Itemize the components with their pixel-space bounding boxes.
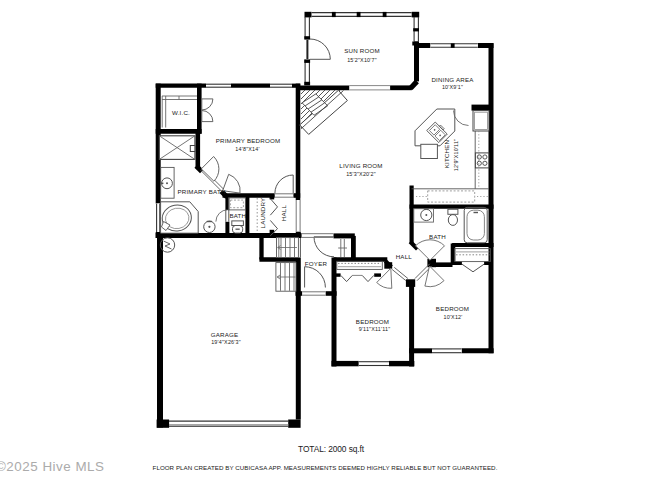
- svg-text:15'3"X20'2": 15'3"X20'2": [346, 171, 376, 177]
- svg-text:BEDROOM: BEDROOM: [436, 305, 469, 312]
- svg-text:W.I.C.: W.I.C.: [172, 109, 190, 116]
- svg-text:PRIMARY BATH: PRIMARY BATH: [177, 188, 225, 195]
- svg-text:FLOOR PLAN CREATED BY CUBICASA: FLOOR PLAN CREATED BY CUBICASA APP. MEAS…: [153, 464, 498, 471]
- svg-text:BATH: BATH: [229, 212, 246, 219]
- svg-text:14'8"X14': 14'8"X14': [235, 146, 259, 152]
- svg-text:12'9"X10'11": 12'9"X10'11": [453, 139, 459, 171]
- svg-text:©2025 Hive MLS: ©2025 Hive MLS: [0, 459, 104, 474]
- svg-text:DINING AREA: DINING AREA: [431, 76, 474, 83]
- svg-text:LIVING ROOM: LIVING ROOM: [339, 162, 382, 169]
- svg-text:15'2"X10'7": 15'2"X10'7": [347, 57, 377, 63]
- svg-text:19'4"X26'3": 19'4"X26'3": [211, 339, 241, 345]
- svg-text:BEDROOM: BEDROOM: [356, 318, 389, 325]
- svg-text:HALL: HALL: [396, 253, 413, 260]
- svg-text:9'11"X11'11": 9'11"X11'11": [359, 326, 391, 332]
- svg-text:BATH: BATH: [429, 233, 446, 240]
- svg-text:10'X9'1": 10'X9'1": [442, 84, 463, 90]
- svg-text:LAUNDRY: LAUNDRY: [259, 198, 266, 229]
- svg-text:TOTAL: 2000 sq.ft: TOTAL: 2000 sq.ft: [298, 444, 365, 454]
- svg-text:PRIMARY BEDROOM: PRIMARY BEDROOM: [216, 137, 281, 144]
- svg-text:KITCHEN: KITCHEN: [443, 140, 450, 169]
- svg-text:10'X12': 10'X12': [443, 314, 462, 320]
- svg-text:GARAGE: GARAGE: [211, 331, 239, 338]
- svg-text:SUN ROOM: SUN ROOM: [344, 47, 380, 54]
- svg-text:FOYER: FOYER: [305, 260, 328, 267]
- svg-text:HALL: HALL: [280, 205, 287, 222]
